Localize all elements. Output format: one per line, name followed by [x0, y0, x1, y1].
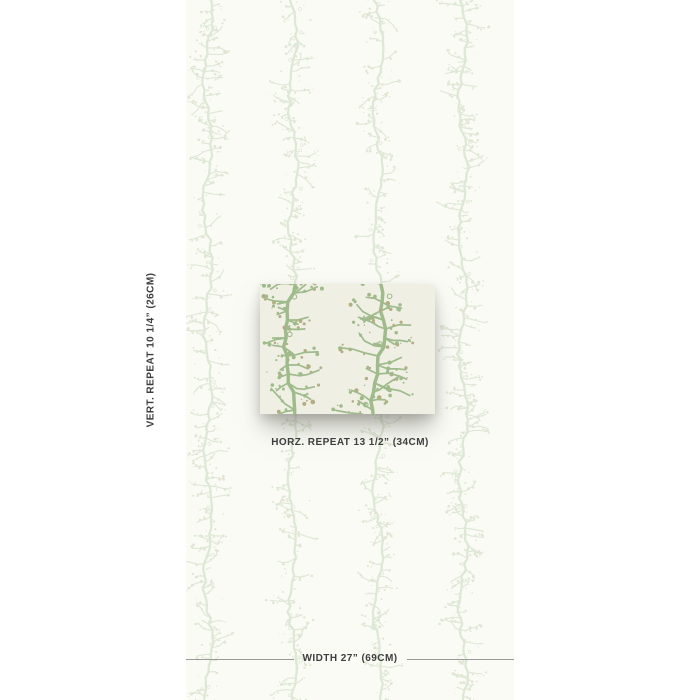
swatch-pattern	[260, 284, 435, 414]
vertical-repeat-label: VERT. REPEAT 10 1/4” (26CM)	[146, 273, 157, 428]
horizontal-repeat-label: HORZ. REPEAT 13 1/2” (34CM)	[186, 437, 514, 449]
width-label: WIDTH 27” (69CM)	[303, 652, 398, 666]
product-image: VERT. REPEAT 10 1/4” (26CM) HORZ. REPEAT…	[0, 0, 700, 700]
width-line-left	[186, 659, 294, 660]
width-annotation: WIDTH 27” (69CM)	[186, 652, 514, 666]
width-line-right	[407, 659, 515, 660]
pattern-swatch-card	[260, 284, 435, 414]
